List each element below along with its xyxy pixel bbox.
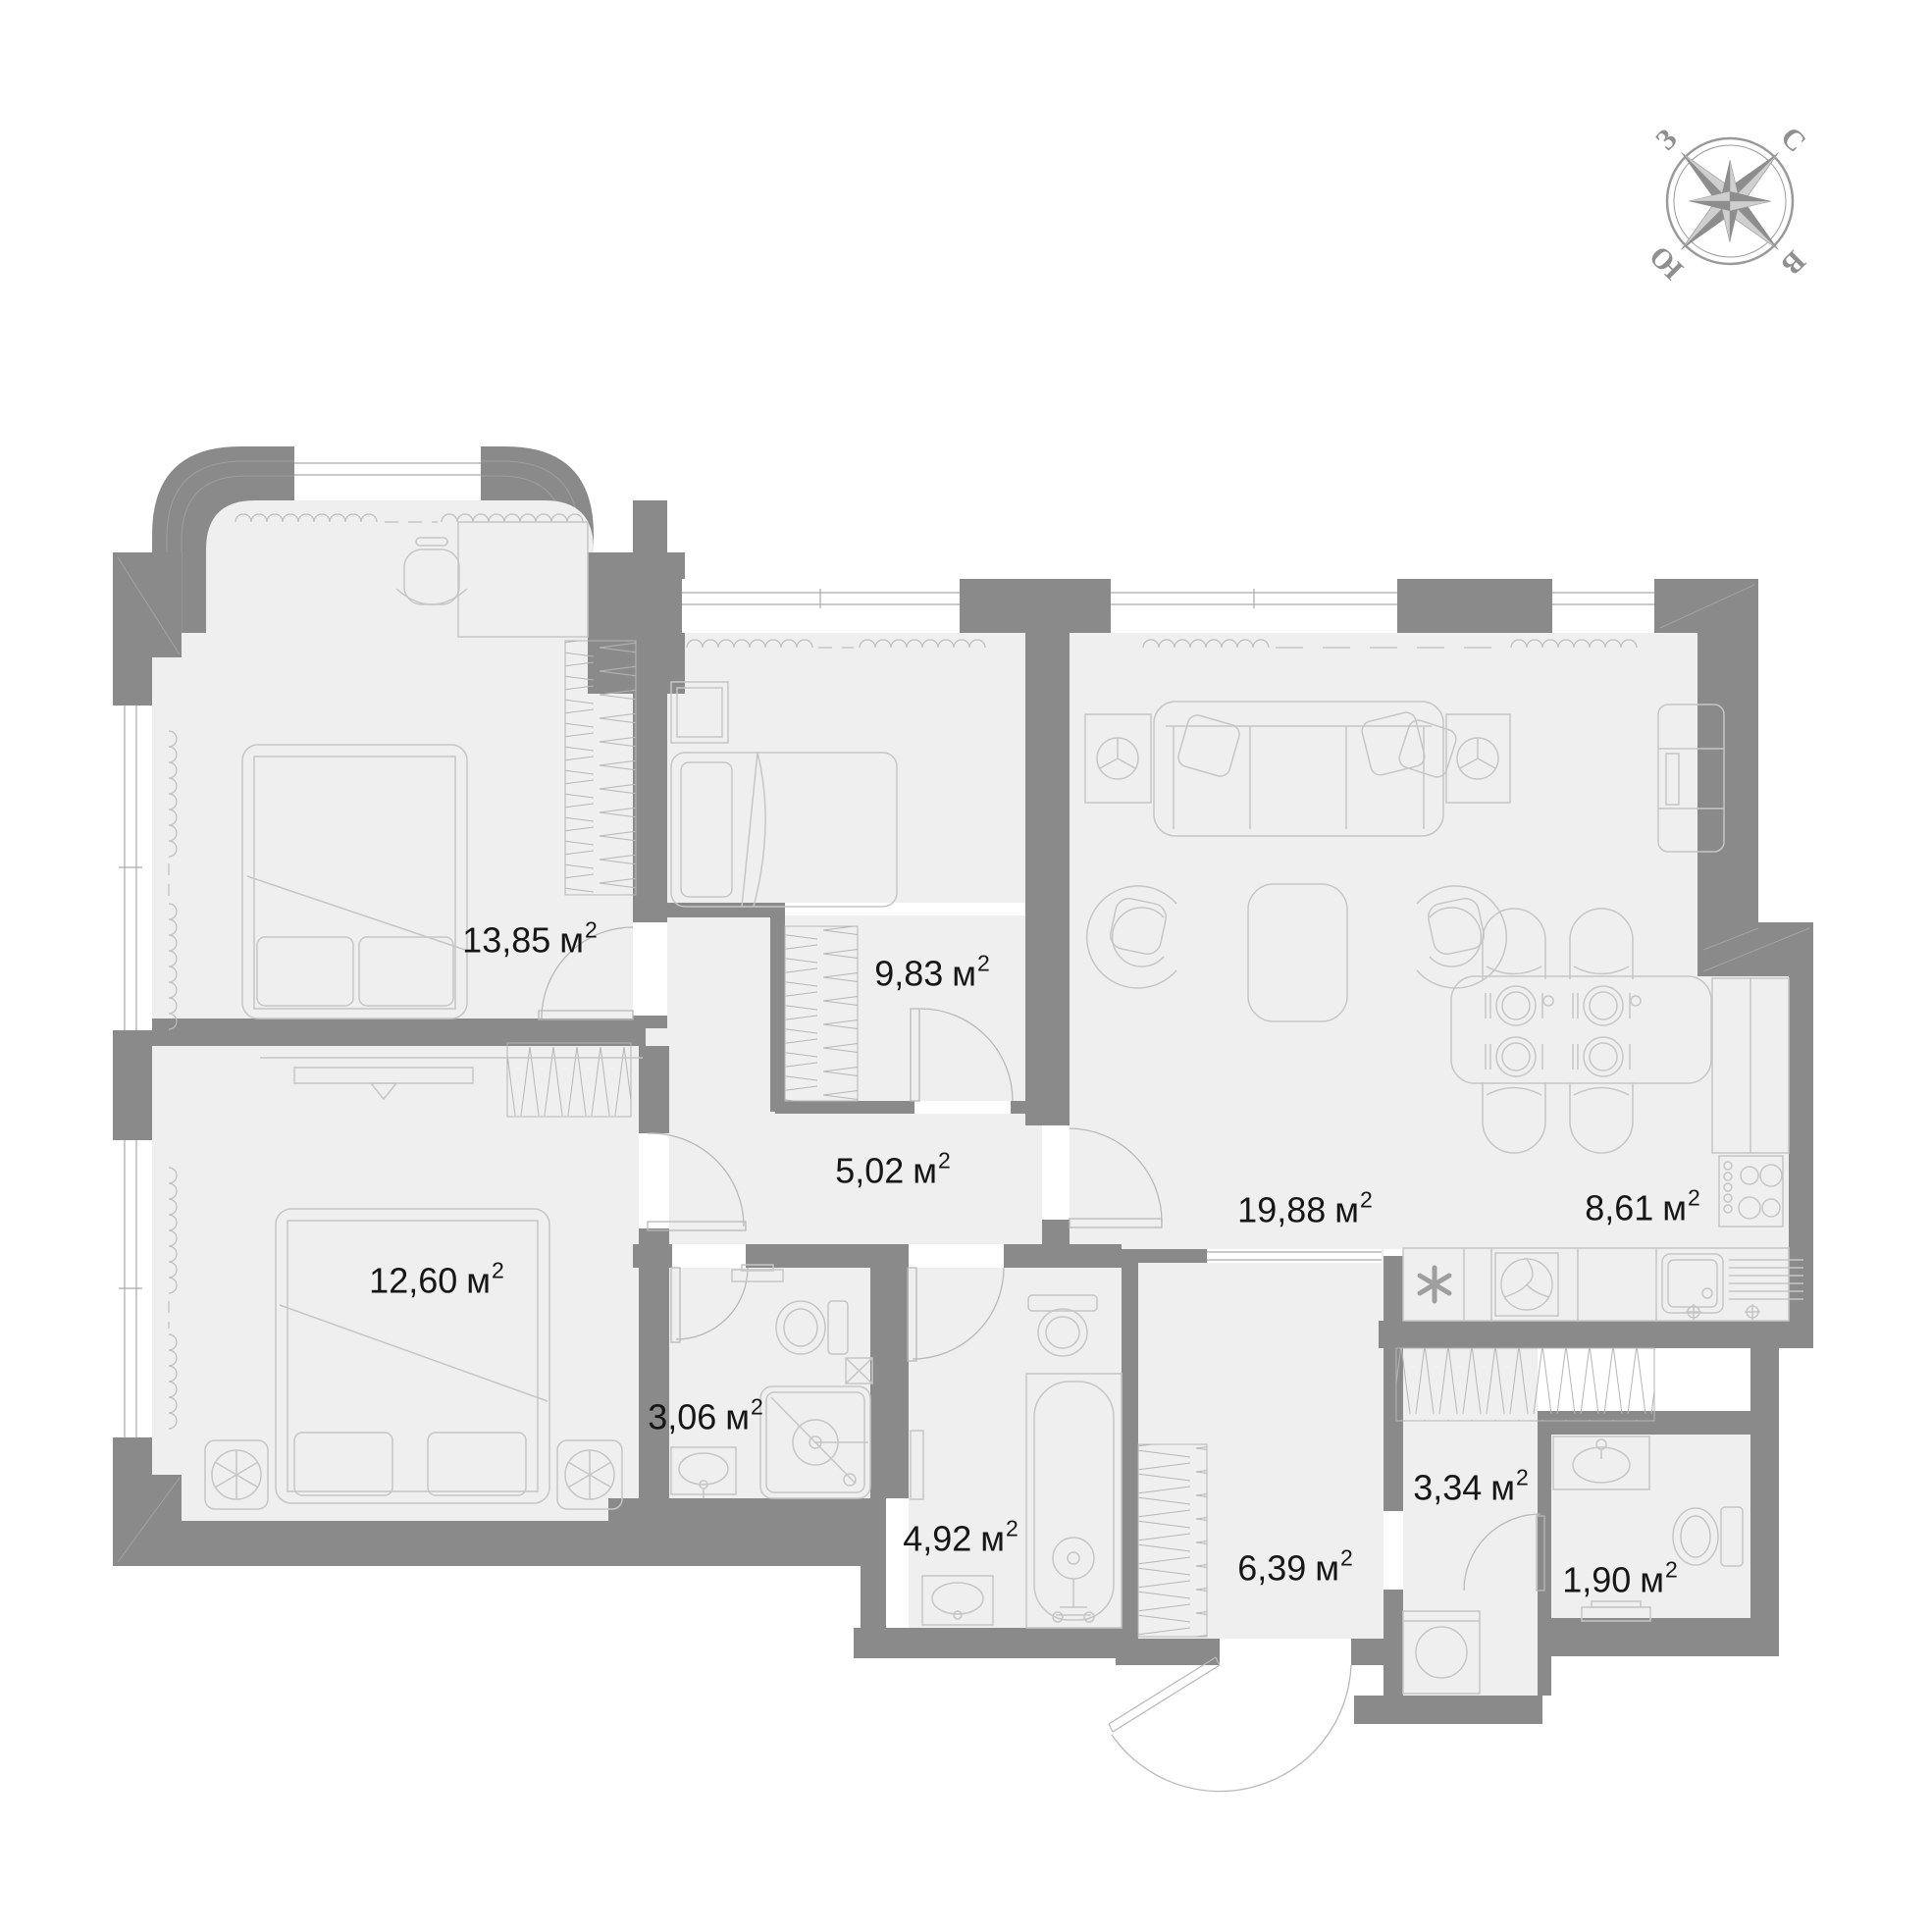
compass-east-label: В bbox=[1775, 244, 1811, 281]
room-area-label-bathroom-2: 4,92м2 bbox=[903, 1518, 1018, 1560]
floorplan-page: С В Ю З 13,85м2 9,83м2 5,02м2 12,60м2 3,… bbox=[0, 0, 1932, 1932]
room-floor-kitchen-counter-zone bbox=[1403, 1248, 1789, 1321]
room-area-label-bedroom-1: 13,85м2 bbox=[462, 919, 598, 962]
compass-north-label: С bbox=[1774, 121, 1812, 159]
door-gap-living bbox=[1042, 1125, 1070, 1220]
wardrobe-bedroom-3 bbox=[507, 1043, 631, 1117]
room-floor-bathroom-2 bbox=[909, 1268, 1122, 1628]
compass-south-label: Ю bbox=[1644, 239, 1690, 286]
room-area-label-kitchen: 8,61м2 bbox=[1585, 1187, 1700, 1229]
door-gap-bathroom-2 bbox=[909, 1244, 1004, 1268]
door-gap-bedroom-2 bbox=[914, 1101, 1011, 1114]
window-bay bbox=[294, 446, 481, 500]
wardrobe-dressing bbox=[1396, 1348, 1654, 1421]
room-area-label-living: 19,88м2 bbox=[1237, 1189, 1373, 1231]
room-floor-bathroom-1 bbox=[669, 1268, 870, 1498]
room-area-label-dressing: 3,34м2 bbox=[1413, 1467, 1529, 1509]
door-entry bbox=[1109, 1657, 1351, 1792]
door-gap-bathroom-1 bbox=[672, 1244, 746, 1268]
compass-rose: С В Ю З bbox=[1644, 121, 1812, 286]
door-gap-entry bbox=[1220, 1639, 1351, 1665]
room-area-label-hallway: 5,02м2 bbox=[835, 1150, 951, 1192]
door-gap-dressing bbox=[1384, 1511, 1403, 1590]
door-gap-bedroom-3 bbox=[639, 1133, 669, 1228]
wardrobe-bedroom-2 bbox=[785, 926, 858, 1101]
room-floor-living bbox=[1070, 633, 1697, 1249]
passage-living-entry bbox=[1207, 1249, 1382, 1263]
room-area-label-bedroom-3: 12,60м2 bbox=[369, 1260, 504, 1302]
room-area-label-bathroom-1: 3,06м2 bbox=[648, 1396, 763, 1438]
room-area-label-bedroom-2: 9,83м2 bbox=[874, 953, 990, 995]
wardrobe-bedroom-1 bbox=[565, 641, 636, 895]
compass-west-label: З bbox=[1649, 123, 1684, 157]
room-floor-bedroom-2 bbox=[665, 633, 1025, 903]
room-area-label-entrance: 6,39м2 bbox=[1237, 1547, 1353, 1590]
room-area-label-wc: 1,90м2 bbox=[1562, 1559, 1678, 1601]
door-gap-bedroom-1 bbox=[633, 922, 667, 1016]
window-top-c bbox=[1552, 579, 1654, 633]
coat-closet-entry bbox=[1138, 1444, 1207, 1637]
